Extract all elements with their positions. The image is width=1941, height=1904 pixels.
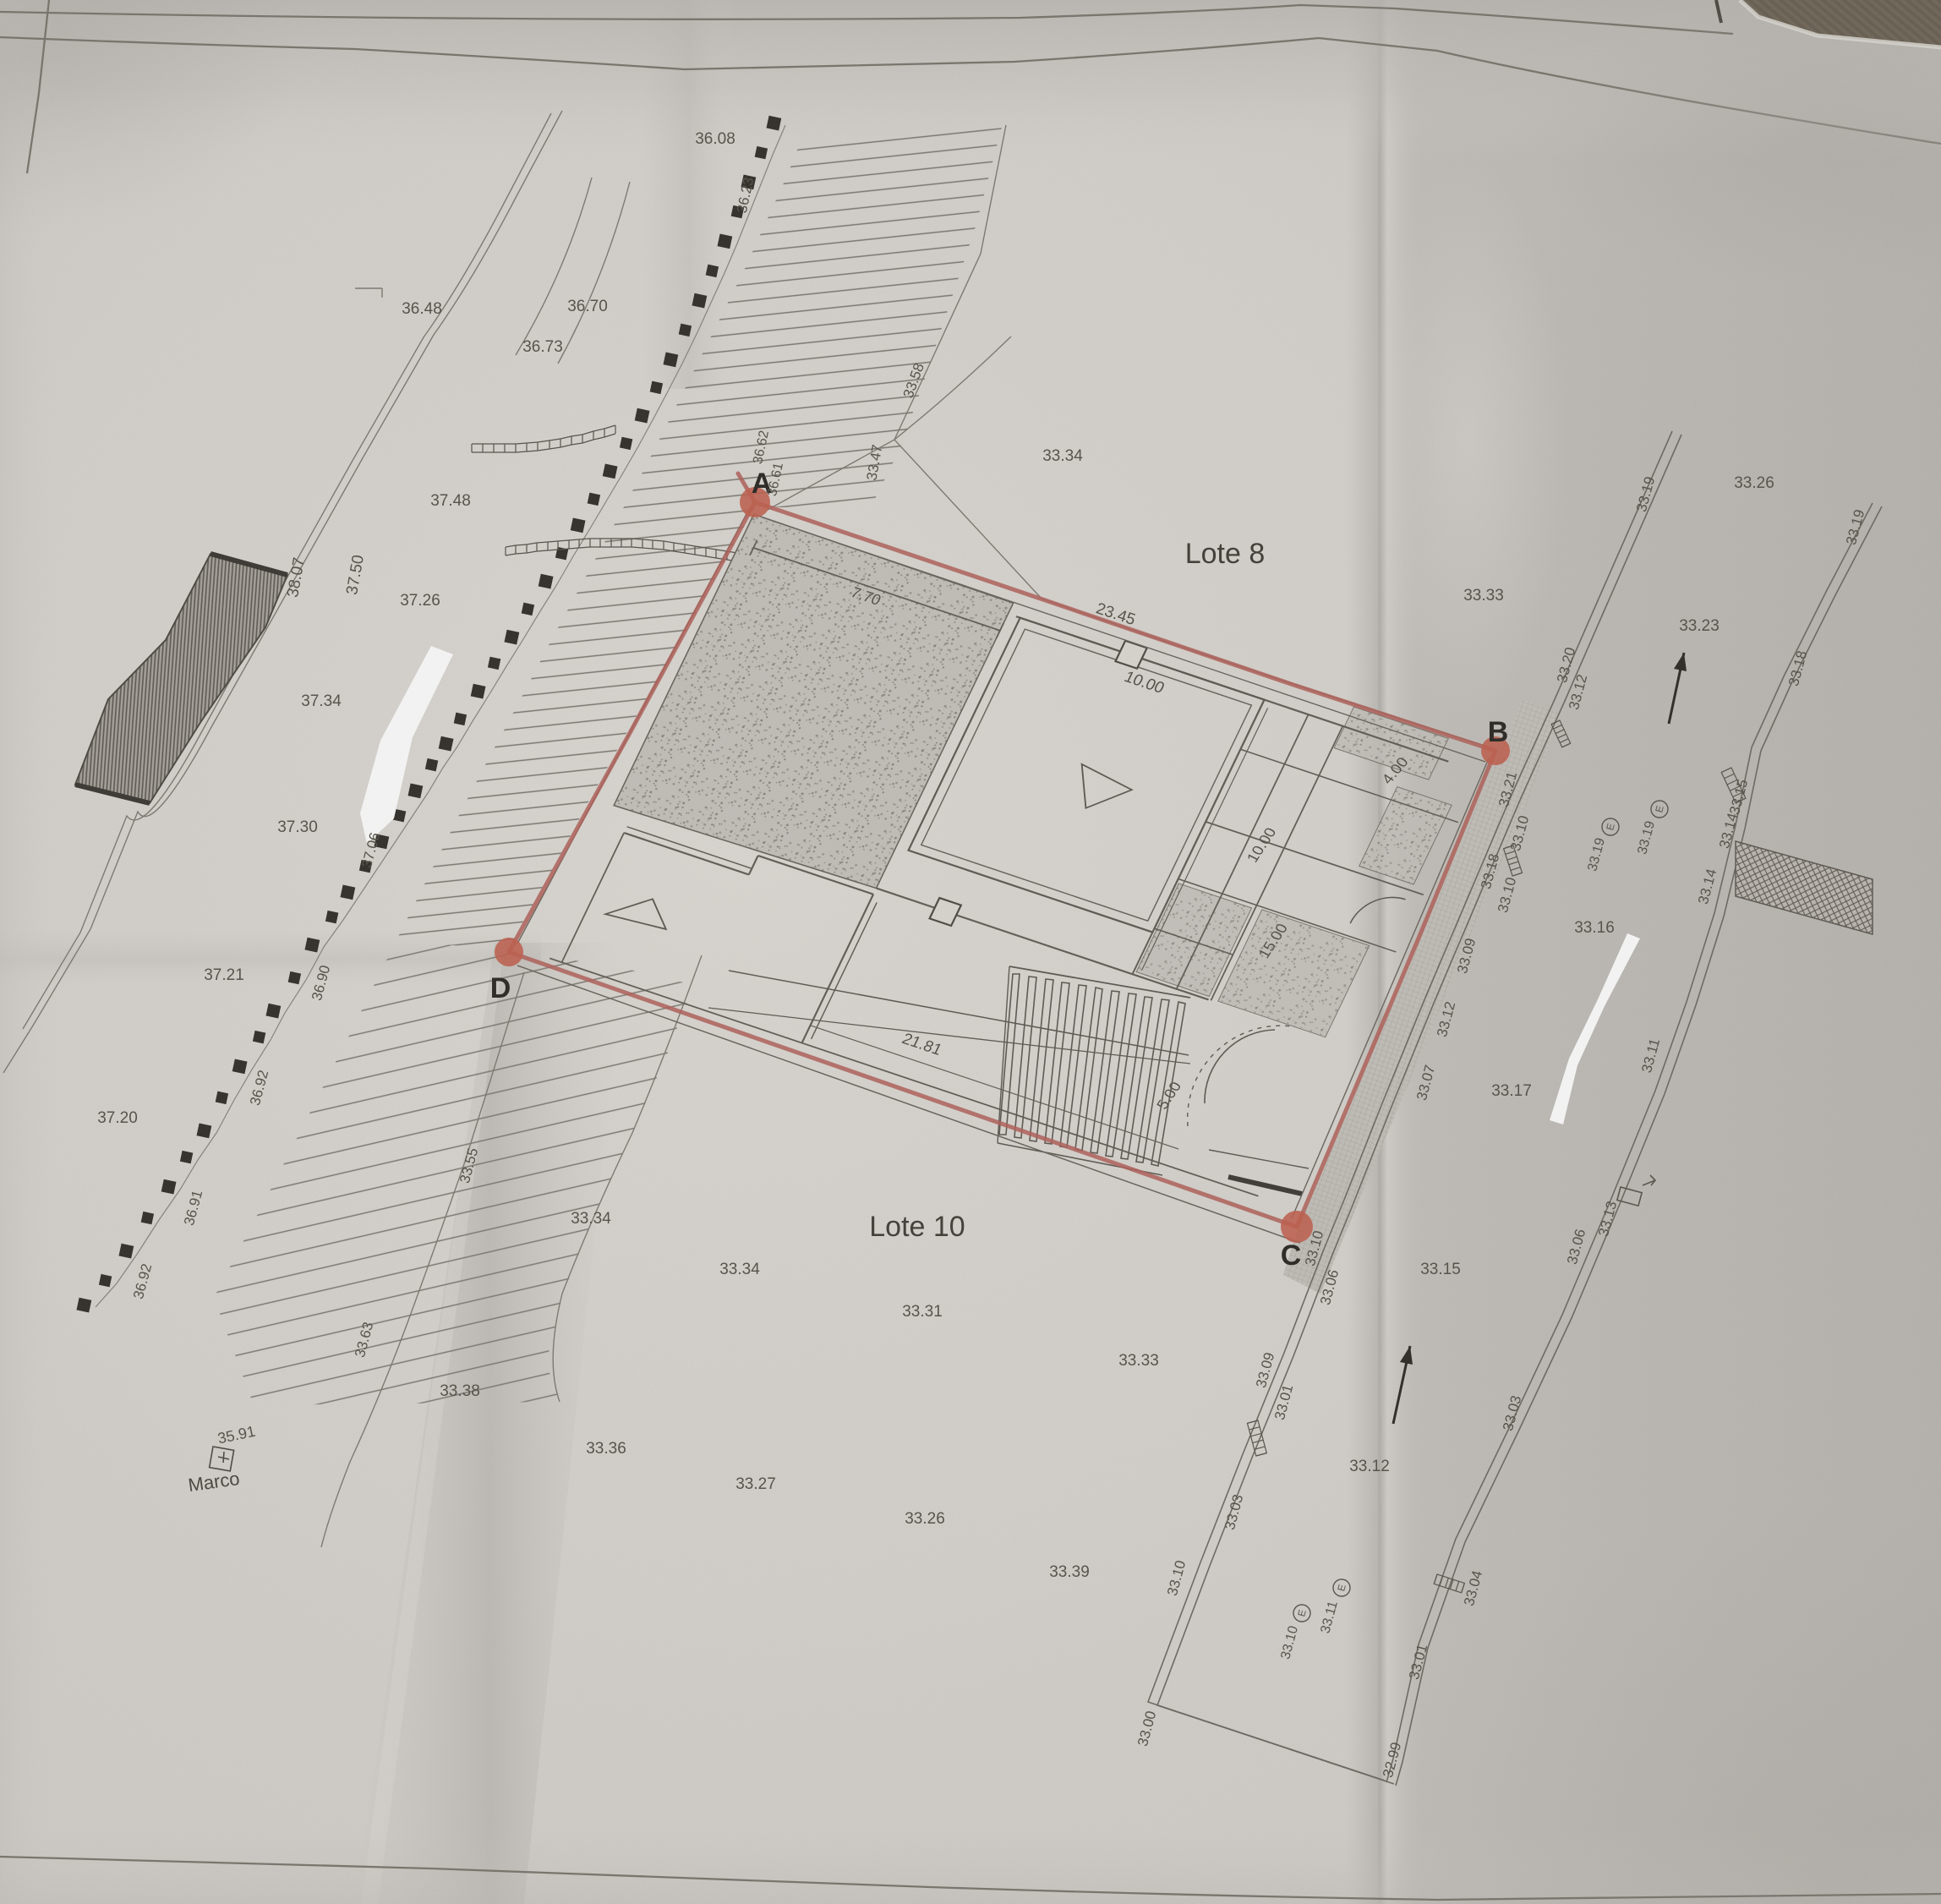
svg-text:33.34: 33.34 [719, 1261, 760, 1278]
svg-text:33.16: 33.16 [1574, 919, 1615, 937]
svg-text:33.15: 33.15 [1420, 1261, 1461, 1278]
svg-text:33.17: 33.17 [1491, 1082, 1532, 1100]
svg-text:36.48: 36.48 [402, 300, 442, 318]
svg-text:33.36: 33.36 [586, 1440, 626, 1458]
svg-text:37.34: 37.34 [301, 692, 342, 710]
svg-text:33.26: 33.26 [905, 1510, 945, 1528]
svg-text:33.23: 33.23 [1679, 617, 1720, 635]
svg-text:33.39: 33.39 [1049, 1563, 1090, 1581]
svg-text:33.34: 33.34 [571, 1210, 611, 1228]
svg-text:33.26: 33.26 [1734, 474, 1774, 492]
svg-text:33.38: 33.38 [440, 1382, 480, 1400]
svg-text:36.70: 36.70 [567, 298, 608, 315]
svg-text:Lote 8: Lote 8 [1185, 538, 1266, 570]
svg-text:37.21: 37.21 [204, 966, 244, 984]
svg-text:37.26: 37.26 [400, 592, 440, 610]
svg-text:33.33: 33.33 [1118, 1352, 1159, 1370]
svg-text:33.12: 33.12 [1349, 1458, 1390, 1475]
svg-text:Lote 10: Lote 10 [869, 1211, 965, 1243]
svg-text:36.08: 36.08 [695, 130, 735, 148]
svg-text:33.34: 33.34 [1042, 447, 1083, 465]
svg-text:33.31: 33.31 [902, 1303, 943, 1321]
svg-text:37.20: 37.20 [97, 1109, 138, 1127]
svg-text:33.27: 33.27 [735, 1475, 776, 1493]
svg-text:33.33: 33.33 [1463, 587, 1504, 605]
svg-text:36.73: 36.73 [522, 338, 563, 356]
svg-text:37.48: 37.48 [430, 492, 471, 510]
svg-text:37.30: 37.30 [277, 818, 318, 836]
